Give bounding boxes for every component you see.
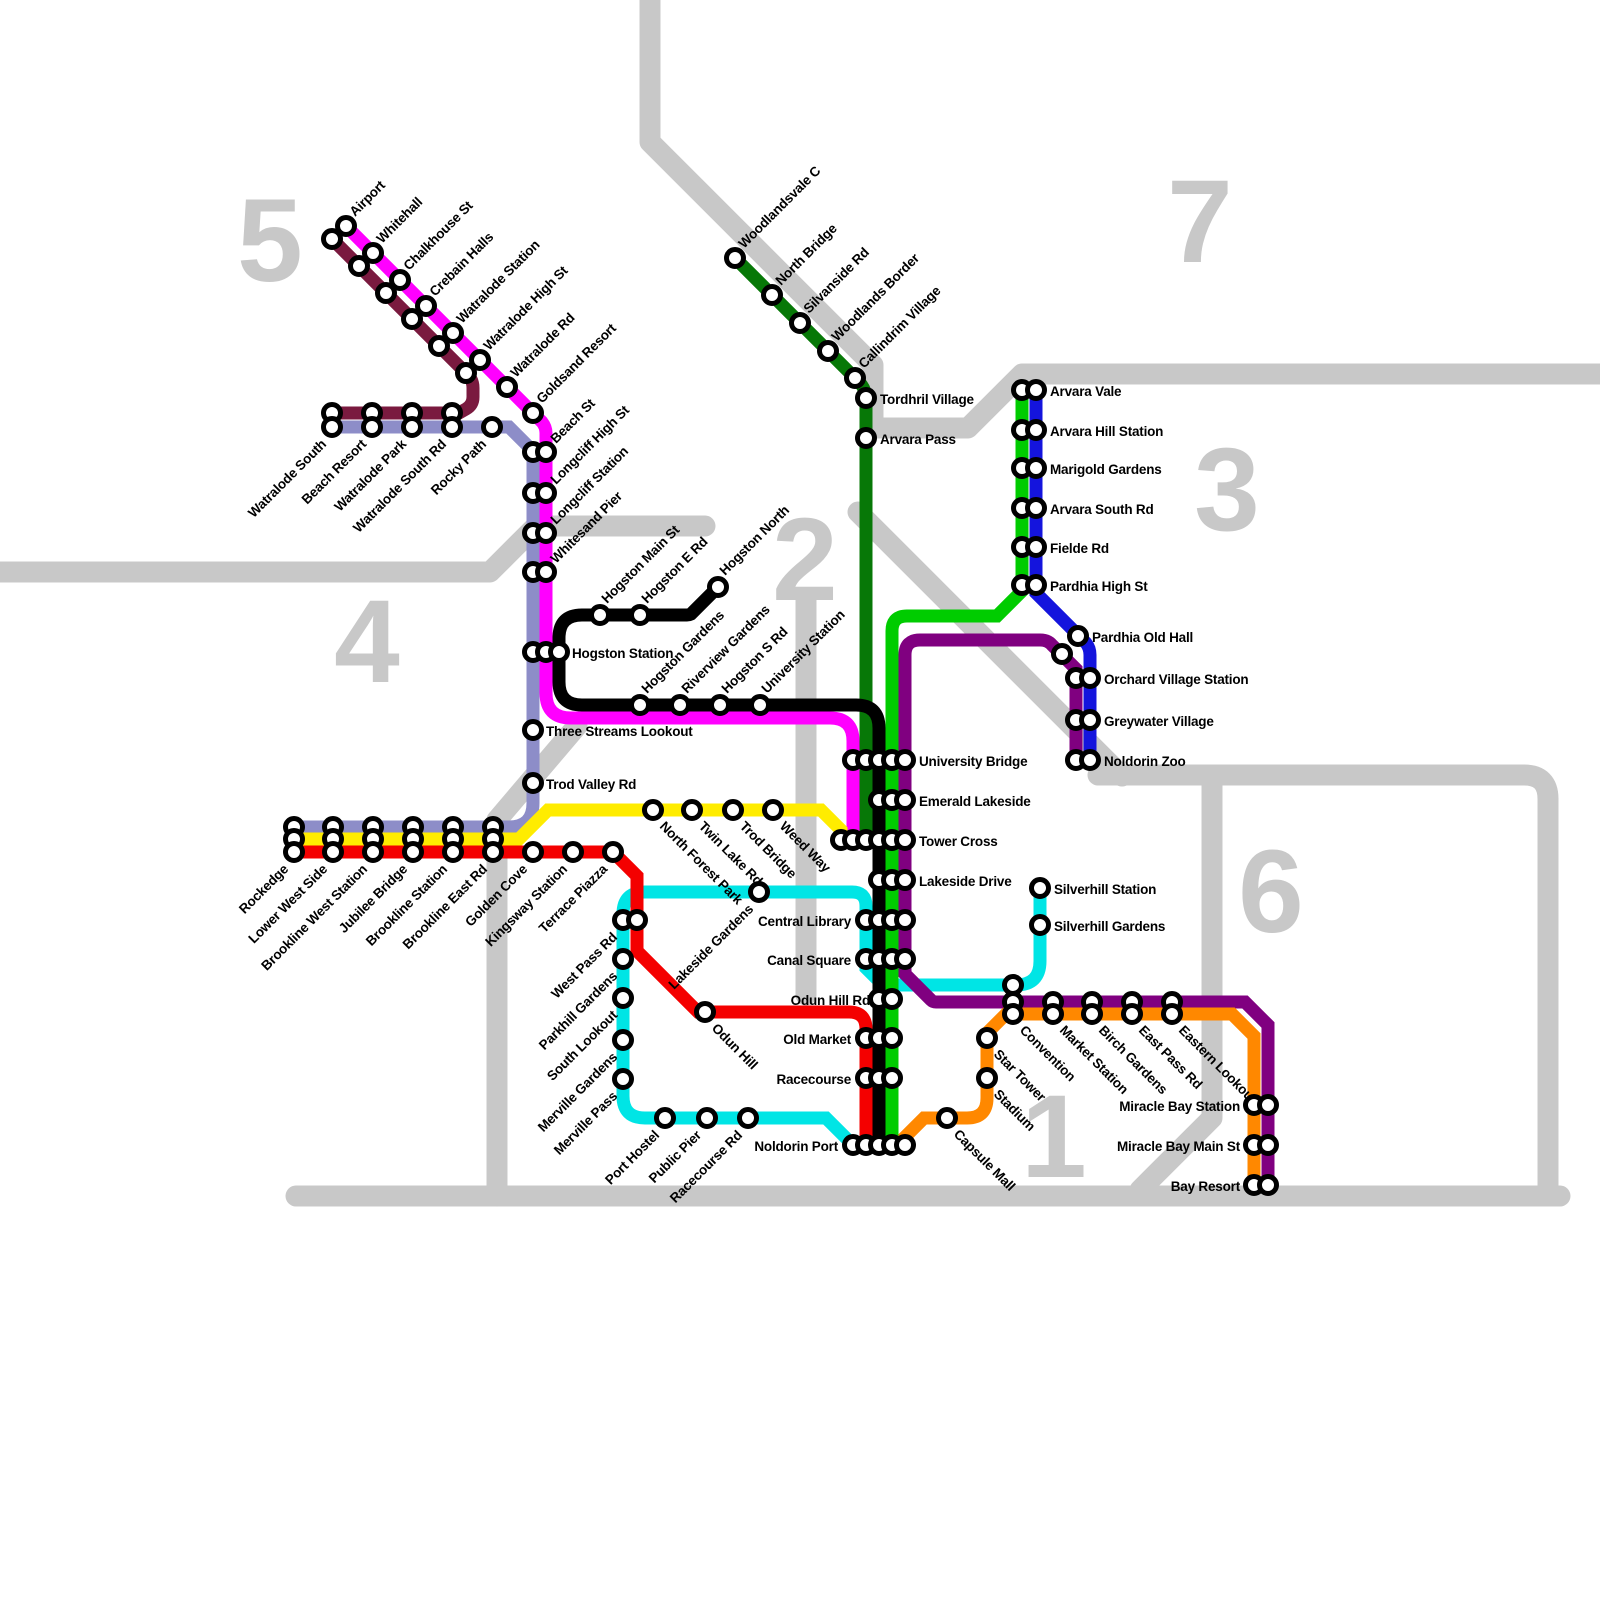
station-marker bbox=[752, 697, 769, 714]
station-crebain-halls bbox=[404, 298, 435, 328]
station-label-terrace-piazza: Terrace Piazza bbox=[536, 861, 611, 936]
station-marker bbox=[897, 792, 914, 809]
station-marker bbox=[979, 1030, 996, 1047]
station-label-three-streams-lookout: Three Streams Lookout bbox=[546, 724, 693, 739]
station-marker bbox=[615, 990, 632, 1007]
station-label-capsule-mall: Capsule Mall bbox=[951, 1127, 1018, 1194]
station-marker bbox=[525, 722, 542, 739]
station-fielde-rd bbox=[1014, 539, 1045, 556]
station-marker bbox=[404, 419, 421, 436]
station-marker bbox=[710, 579, 727, 596]
station-silverhill-station bbox=[1032, 880, 1049, 897]
station-marker bbox=[286, 844, 303, 861]
station-marker bbox=[392, 272, 409, 289]
station-marker bbox=[884, 991, 901, 1008]
station-marker bbox=[485, 844, 502, 861]
station-marker bbox=[712, 697, 729, 714]
station-port-hostel bbox=[657, 1110, 674, 1127]
station-weed-way bbox=[765, 802, 782, 819]
station-golden-cove bbox=[525, 844, 542, 861]
station-marker bbox=[897, 951, 914, 968]
station-watralode-station bbox=[431, 325, 462, 355]
station-label-airport: Airport bbox=[347, 177, 389, 219]
station-miracle-bay-main-st bbox=[1246, 1137, 1277, 1154]
station-marker bbox=[632, 607, 649, 624]
station-marker bbox=[684, 802, 701, 819]
station-label-university-bridge: University Bridge bbox=[919, 754, 1028, 769]
station-label-noldorin-zoo: Noldorin Zoo bbox=[1104, 754, 1186, 769]
station-marker bbox=[551, 644, 568, 661]
station-goldsand-resort bbox=[525, 405, 542, 422]
station-marker bbox=[525, 844, 542, 861]
station-label-woodlandsvale-c: Woodlandsvale C bbox=[736, 163, 824, 251]
station-label-jubilee-bridge: Jubilee Bridge bbox=[336, 861, 411, 936]
zone-boundary-5 bbox=[1140, 780, 1212, 1190]
station-label-bay-resort: Bay Resort bbox=[1171, 1179, 1241, 1194]
station-three-streams-lookout bbox=[525, 722, 542, 739]
zone-number-4: 4 bbox=[334, 576, 400, 708]
station-label-old-market: Old Market bbox=[783, 1032, 851, 1047]
station-label-west-pass-rd: West Pass Rd bbox=[548, 930, 620, 1002]
station-marker bbox=[1028, 539, 1045, 556]
station-marker bbox=[418, 298, 435, 315]
station-marker bbox=[697, 1004, 714, 1021]
station-airport bbox=[324, 218, 355, 248]
station-racecourse-rd bbox=[740, 1110, 757, 1127]
station-noldorin-zoo bbox=[1068, 752, 1099, 769]
station-marker bbox=[979, 1070, 996, 1087]
station-watralode-high-st bbox=[458, 352, 489, 382]
station-marker bbox=[1070, 628, 1087, 645]
station-convention bbox=[1005, 977, 1022, 1023]
station-label-emerald-lakeside: Emerald Lakeside bbox=[919, 794, 1031, 809]
station-marker bbox=[1164, 1006, 1181, 1023]
station-label-arvara-vale: Arvara Vale bbox=[1050, 384, 1122, 399]
station-marker bbox=[1084, 1006, 1101, 1023]
station-marker bbox=[538, 525, 555, 542]
station-marker bbox=[565, 844, 582, 861]
station-label-tower-cross: Tower Cross bbox=[919, 834, 998, 849]
station-terrace-piazza bbox=[605, 844, 622, 861]
station-brookline-west-station bbox=[365, 819, 382, 861]
station-marker bbox=[645, 802, 662, 819]
station-woodlands-border bbox=[820, 343, 837, 360]
station-marker bbox=[1028, 500, 1045, 517]
zone-number-6: 6 bbox=[1238, 826, 1304, 958]
station-label-miracle-bay-main-st: Miracle Bay Main St bbox=[1117, 1139, 1241, 1154]
station-label-birch-gardens: Birch Gardens bbox=[1096, 1023, 1171, 1098]
station-longcliff-high-st bbox=[525, 485, 555, 502]
station-marker bbox=[765, 802, 782, 819]
station-marker bbox=[1260, 1097, 1277, 1114]
station-marker bbox=[740, 1110, 757, 1127]
station-hogston-e-rd bbox=[632, 607, 649, 624]
station-silvanside-rd bbox=[792, 315, 809, 332]
station-marker bbox=[699, 1110, 716, 1127]
station-marker bbox=[847, 370, 864, 387]
station-beach-st bbox=[525, 444, 555, 461]
zone-number-3: 3 bbox=[1194, 424, 1260, 556]
station-marker bbox=[884, 1070, 901, 1087]
station-tordhril-village bbox=[858, 390, 875, 407]
station-label-pardhia-high-st: Pardhia High St bbox=[1050, 579, 1148, 594]
station-capsule-mall bbox=[939, 1110, 956, 1127]
station-marigold-gardens bbox=[1014, 460, 1045, 477]
station-noldorin-port bbox=[845, 1137, 914, 1154]
station-marker bbox=[538, 485, 555, 502]
station-whitehall bbox=[351, 245, 382, 275]
station-woodlandsvale-c bbox=[727, 250, 744, 267]
station-marker bbox=[1028, 577, 1045, 594]
station-canal-square bbox=[858, 951, 914, 968]
station-marker bbox=[445, 844, 462, 861]
station-marker bbox=[764, 287, 781, 304]
station-university-bridge bbox=[845, 752, 914, 769]
station-label-arvara-hill-station: Arvara Hill Station bbox=[1050, 424, 1163, 439]
station-marker bbox=[725, 802, 742, 819]
station-west-pass-rd bbox=[615, 912, 646, 929]
station-south-lookout bbox=[615, 990, 632, 1007]
station-arvara-vale bbox=[1014, 382, 1045, 399]
station-marker bbox=[897, 912, 914, 929]
station-marker bbox=[1028, 460, 1045, 477]
station-label-south-lookout: South Lookout bbox=[544, 1007, 621, 1084]
station-marker bbox=[897, 1137, 914, 1154]
station-marker bbox=[525, 405, 542, 422]
station-orchard-village-station bbox=[1068, 670, 1099, 687]
station-marker bbox=[484, 419, 501, 436]
station-odun-hill bbox=[697, 1004, 714, 1021]
zone-number-5: 5 bbox=[237, 175, 303, 307]
station-label-odun-hill: Odun Hill bbox=[709, 1021, 761, 1073]
station-miracle-bay-station bbox=[1246, 1097, 1277, 1114]
station-watralode-park bbox=[404, 405, 421, 436]
station-marker bbox=[1045, 1006, 1062, 1023]
station-marker bbox=[1260, 1137, 1277, 1154]
station-hogston-main-st bbox=[592, 607, 609, 624]
station-marker bbox=[338, 218, 355, 235]
station-label-marigold-gardens: Marigold Gardens bbox=[1050, 462, 1162, 477]
station-marker bbox=[1028, 422, 1045, 439]
station-label-arvara-pass: Arvara Pass bbox=[880, 432, 956, 447]
station-hogston-station bbox=[525, 644, 568, 661]
station-east-pass-rd bbox=[1124, 994, 1141, 1023]
station-marker bbox=[820, 343, 837, 360]
station-marker bbox=[939, 1110, 956, 1127]
station-marker bbox=[538, 564, 555, 581]
station-rockedge bbox=[286, 819, 303, 861]
zone-number-7: 7 bbox=[1167, 156, 1233, 288]
station-label-tordhril-village: Tordhril Village bbox=[880, 392, 975, 407]
station-marker bbox=[1005, 1006, 1022, 1023]
station-beach-resort bbox=[364, 405, 381, 436]
station-marker bbox=[727, 250, 744, 267]
station-marker bbox=[324, 419, 341, 436]
station-label-noldorin-port: Noldorin Port bbox=[754, 1139, 838, 1154]
station-marker bbox=[592, 607, 609, 624]
station-north-bridge bbox=[764, 287, 781, 304]
station-tower-cross bbox=[833, 832, 914, 849]
station-marker bbox=[1082, 712, 1099, 729]
station-public-pier bbox=[699, 1110, 716, 1127]
station-arvara-south-rd bbox=[1014, 500, 1045, 517]
station-marker bbox=[657, 1110, 674, 1127]
station-marker bbox=[897, 832, 914, 849]
station-marker bbox=[897, 872, 914, 889]
station-rocky-path bbox=[484, 419, 501, 436]
station-marker bbox=[364, 419, 381, 436]
station-marker bbox=[792, 315, 809, 332]
station-north-forest-park bbox=[645, 802, 662, 819]
station-marker bbox=[615, 951, 632, 968]
station-parkhill-gardens bbox=[615, 951, 632, 968]
station-label-odun-hill-rd: Odun Hill Rd bbox=[791, 993, 870, 1008]
zone-boundary-2 bbox=[0, 526, 705, 572]
station-marker bbox=[897, 752, 914, 769]
station-merville-pass bbox=[615, 1071, 632, 1088]
station-racecourse bbox=[858, 1070, 901, 1087]
station-trod-bridge bbox=[725, 802, 742, 819]
station-lakeside-gardens bbox=[751, 884, 768, 901]
station-jubilee-bridge bbox=[405, 819, 422, 861]
station-chalkhouse-st bbox=[378, 272, 409, 302]
station-merville-gardens bbox=[615, 1032, 632, 1049]
station-university-station bbox=[752, 697, 769, 714]
station-star-tower bbox=[979, 1030, 996, 1047]
station-marker bbox=[365, 245, 382, 262]
station-old-market bbox=[858, 1030, 901, 1047]
station-label-miracle-bay-station: Miracle Bay Station bbox=[1119, 1099, 1240, 1114]
station-marker bbox=[499, 379, 516, 396]
station-greywater-village bbox=[1068, 712, 1099, 729]
station-watralode-south bbox=[324, 405, 341, 436]
station-label-canal-square: Canal Square bbox=[767, 953, 852, 968]
station-marker bbox=[445, 325, 462, 342]
station-label-trod-valley-rd: Trod Valley Rd bbox=[546, 777, 636, 792]
station-marker bbox=[1032, 880, 1049, 897]
station-bay-resort bbox=[1246, 1177, 1277, 1194]
station-kingsway-station bbox=[565, 844, 582, 861]
station-marker bbox=[858, 430, 875, 447]
station-pardhia-old-hall bbox=[1054, 628, 1087, 663]
station-label-racecourse: Racecourse bbox=[776, 1072, 851, 1087]
station-marker bbox=[1032, 917, 1049, 934]
station-marker bbox=[365, 844, 382, 861]
station-label-whitehall: Whitehall bbox=[374, 194, 426, 246]
station-label-arvara-south-rd: Arvara South Rd bbox=[1050, 502, 1154, 517]
station-marker bbox=[884, 1030, 901, 1047]
station-marker bbox=[672, 697, 689, 714]
station-label-orchard-village-station: Orchard Village Station bbox=[1104, 672, 1248, 687]
station-label-fielde-rd: Fielde Rd bbox=[1050, 541, 1109, 556]
station-marker bbox=[472, 352, 489, 369]
station-label-lakeside-drive: Lakeside Drive bbox=[919, 874, 1012, 889]
station-eastern-lookout bbox=[1164, 994, 1181, 1023]
station-label-pardhia-old-hall: Pardhia Old Hall bbox=[1092, 630, 1193, 645]
station-label-central-library: Central Library bbox=[758, 914, 852, 929]
station-marker bbox=[632, 697, 649, 714]
station-arvara-pass bbox=[858, 430, 875, 447]
station-brookline-east-rd bbox=[485, 819, 502, 861]
station-marker bbox=[325, 844, 342, 861]
station-marker bbox=[1054, 646, 1071, 663]
station-lower-west-side bbox=[325, 819, 342, 861]
station-marker bbox=[615, 1071, 632, 1088]
station-stadium bbox=[979, 1070, 996, 1087]
station-marker bbox=[615, 1032, 632, 1049]
station-marker bbox=[444, 419, 461, 436]
station-marker bbox=[1082, 670, 1099, 687]
station-callindrim-village bbox=[847, 370, 864, 387]
metro-map-page: 5723461 AirportWhitehallChalkhouse StCre… bbox=[0, 0, 1600, 1600]
station-trod-valley-rd bbox=[525, 775, 542, 792]
station-riverview-gardens bbox=[672, 697, 689, 714]
station-brookline-station bbox=[445, 819, 462, 861]
station-label-greywater-village: Greywater Village bbox=[1104, 714, 1214, 729]
station-label-silverhill-station: Silverhill Station bbox=[1054, 882, 1156, 897]
station-marker bbox=[751, 884, 768, 901]
metro-map-canvas: 5723461 AirportWhitehallChalkhouse StCre… bbox=[0, 0, 1600, 1600]
station-hogston-north bbox=[710, 579, 727, 596]
station-emerald-lakeside bbox=[871, 792, 914, 809]
station-odun-hill-rd bbox=[871, 991, 901, 1008]
station-label-silverhill-gardens: Silverhill Gardens bbox=[1054, 919, 1165, 934]
station-pardhia-high-st bbox=[1014, 577, 1045, 594]
station-label-hogston-station: Hogston Station bbox=[572, 646, 673, 661]
station-marker bbox=[1028, 382, 1045, 399]
lavender-line bbox=[294, 427, 533, 827]
station-hogston-gardens bbox=[632, 697, 649, 714]
station-marker bbox=[1260, 1177, 1277, 1194]
station-marker bbox=[858, 390, 875, 407]
station-label-watralode-park: Watralode Park bbox=[331, 436, 409, 514]
station-market-station bbox=[1045, 994, 1062, 1023]
station-marker bbox=[538, 444, 555, 461]
station-marker bbox=[405, 844, 422, 861]
station-marker bbox=[1005, 977, 1022, 994]
station-marker bbox=[1082, 752, 1099, 769]
station-birch-gardens bbox=[1084, 994, 1101, 1023]
station-marker bbox=[629, 912, 646, 929]
station-marker bbox=[605, 844, 622, 861]
station-central-library bbox=[858, 912, 914, 929]
zone-boundary-4 bbox=[1098, 775, 1548, 1196]
station-whitesand-pier bbox=[525, 564, 555, 581]
station-watralode-south-rd bbox=[444, 405, 461, 436]
station-silverhill-gardens bbox=[1032, 917, 1049, 934]
station-watralode-rd bbox=[499, 379, 516, 396]
station-marker bbox=[525, 775, 542, 792]
station-label-lakeside-gardens: Lakeside Gardens bbox=[666, 902, 757, 993]
station-lakeside-drive bbox=[871, 872, 914, 889]
station-marker bbox=[1124, 1006, 1141, 1023]
station-longcliff-station bbox=[525, 525, 555, 542]
station-twin-lake-rd bbox=[684, 802, 701, 819]
station-arvara-hill-station bbox=[1014, 422, 1045, 439]
station-hogston-s-rd bbox=[712, 697, 729, 714]
zone-boundary-1 bbox=[650, 0, 1600, 428]
